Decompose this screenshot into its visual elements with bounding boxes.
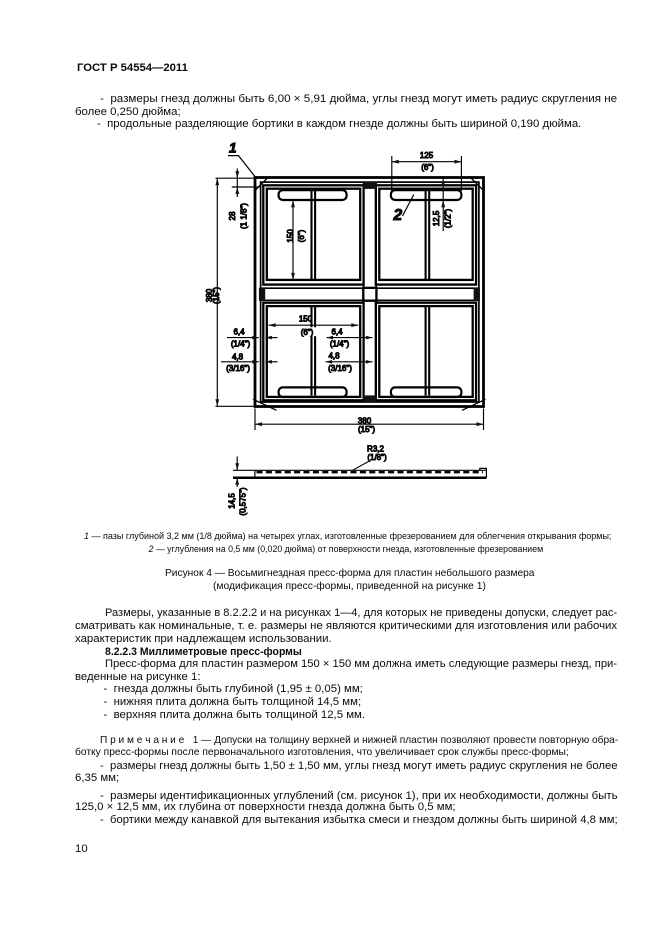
svg-text:4,8: 4,8	[232, 352, 244, 361]
svg-text:2: 2	[393, 207, 403, 224]
svg-text:(15"): (15")	[358, 425, 375, 434]
svg-text:4,8: 4,8	[328, 351, 340, 360]
svg-text:(3/16"): (3/16")	[328, 364, 352, 373]
svg-text:1: 1	[229, 141, 237, 156]
svg-text:(6"): (6")	[301, 328, 314, 337]
svg-text:(3/16"): (3/16")	[226, 364, 250, 373]
svg-text:(1/4"): (1/4")	[330, 340, 350, 349]
svg-text:(1/2"): (1/2")	[443, 209, 452, 229]
svg-text:150: 150	[286, 229, 295, 243]
svg-text:150: 150	[299, 315, 313, 324]
svg-text:(6"): (6")	[421, 163, 434, 172]
svg-text:6,4: 6,4	[331, 327, 343, 336]
svg-text:125: 125	[420, 151, 434, 160]
svg-text:6,4: 6,4	[233, 327, 245, 336]
svg-text:(0,575"): (0,575")	[238, 487, 247, 516]
svg-text:28: 28	[228, 211, 237, 220]
svg-text:12,5: 12,5	[432, 210, 441, 226]
svg-text:(6"): (6")	[297, 229, 306, 242]
svg-text:(1 1/8"): (1 1/8")	[240, 203, 249, 229]
svg-text:(15"): (15")	[212, 287, 221, 304]
svg-text:(1/8"): (1/8")	[367, 453, 387, 462]
svg-text:(1/4"): (1/4")	[231, 340, 251, 349]
svg-text:14,5: 14,5	[227, 493, 236, 509]
